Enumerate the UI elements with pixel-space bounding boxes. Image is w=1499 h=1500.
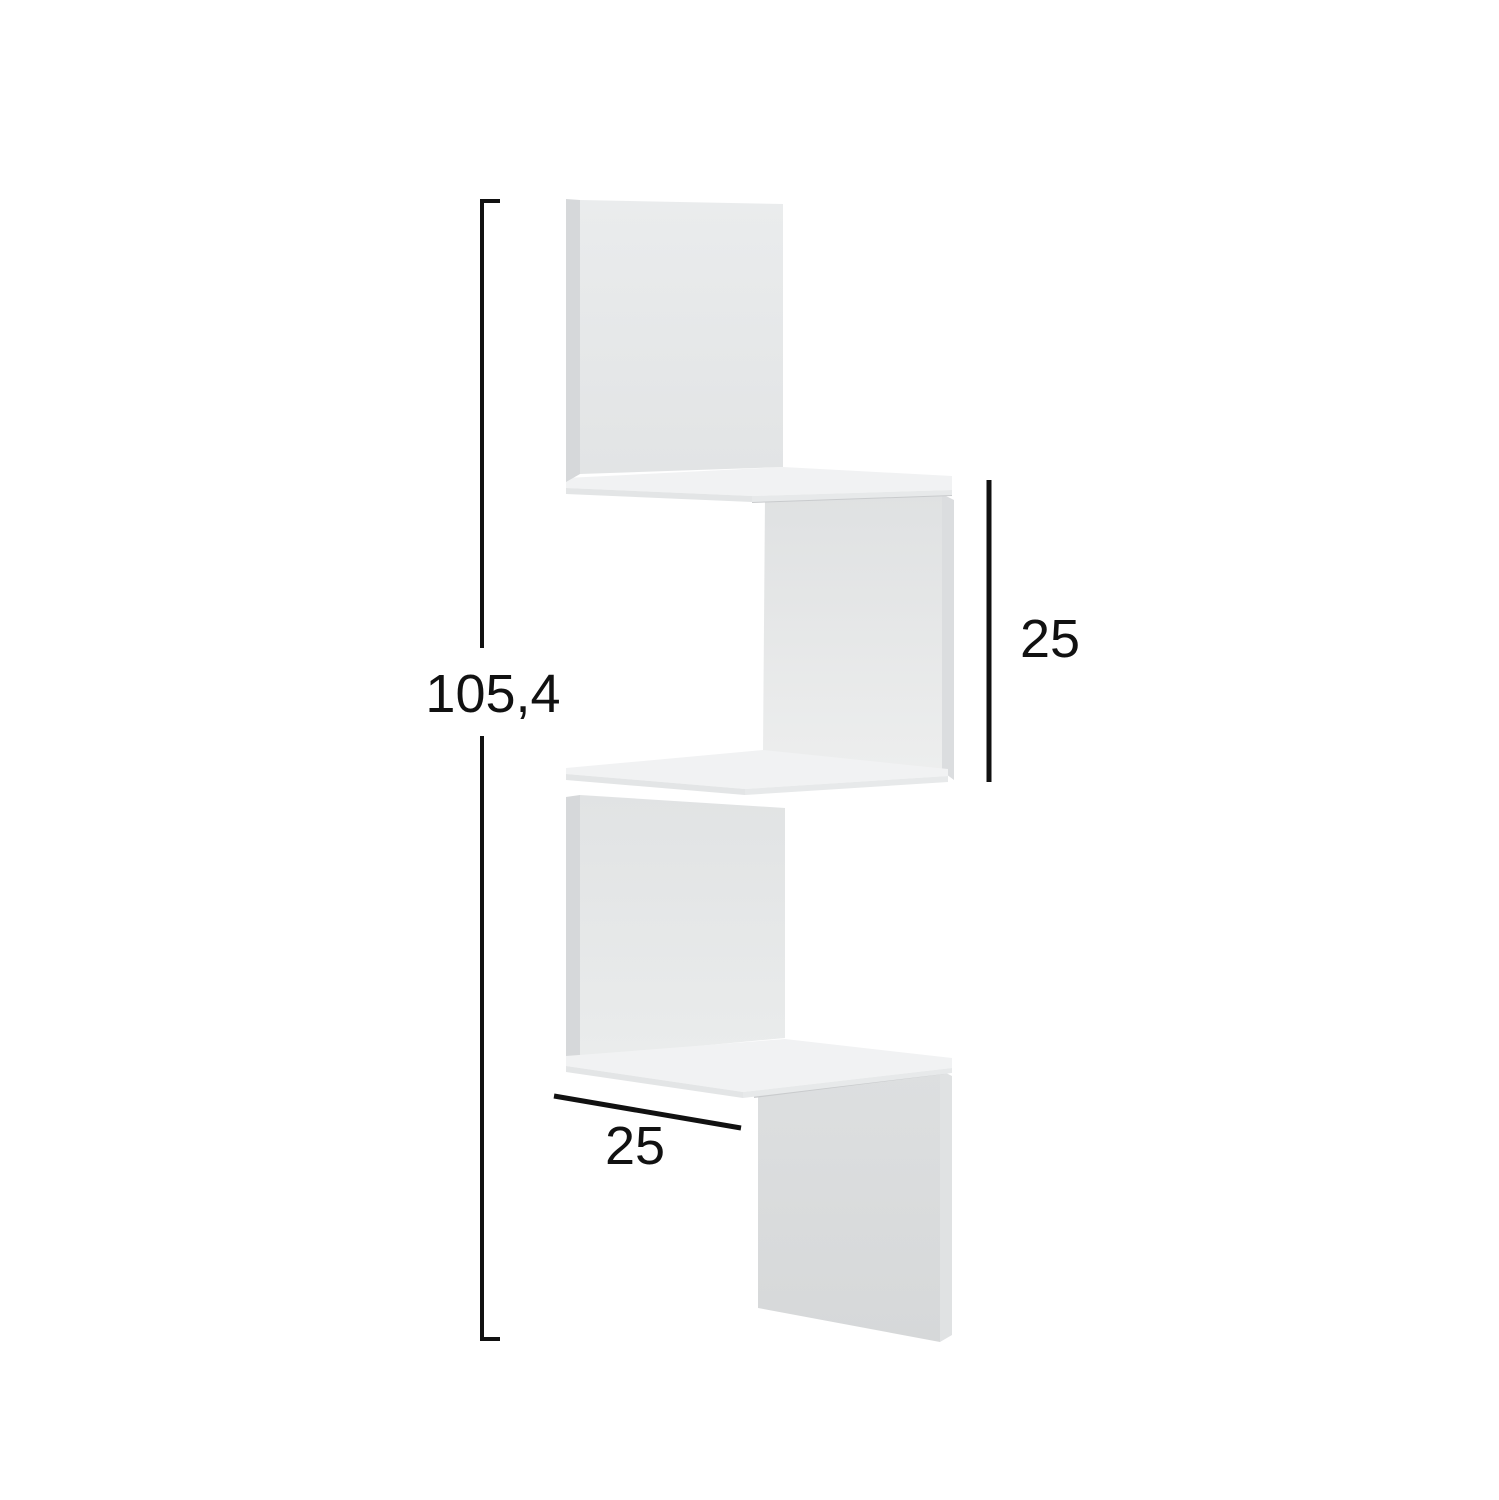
shelf-dimension-diagram: 105,4 25 25 <box>0 0 1499 1500</box>
height-dimension-label: 105,4 <box>425 664 560 724</box>
mid-back-panel-face <box>763 494 942 771</box>
depth-dimension: 25 <box>554 1096 741 1176</box>
top-back-panel-face <box>580 200 783 474</box>
top-back-panel-edge-strip <box>566 199 580 482</box>
inner-height-dimension-label: 25 <box>1020 609 1080 669</box>
inner-height-dimension: 25 <box>989 480 1080 782</box>
diagram-canvas: 105,4 25 25 <box>0 0 1499 1500</box>
third-back-panel-face <box>580 795 785 1057</box>
depth-dimension-label: 25 <box>605 1116 665 1176</box>
mid-back-panel-edge-strip <box>942 494 954 780</box>
bottom-side-panel-edge-strip <box>940 1070 952 1342</box>
third-back-panel-edge-strip <box>566 795 580 1066</box>
bottom-side-panel-face <box>758 1070 940 1342</box>
height-dimension: 105,4 <box>425 199 560 1341</box>
